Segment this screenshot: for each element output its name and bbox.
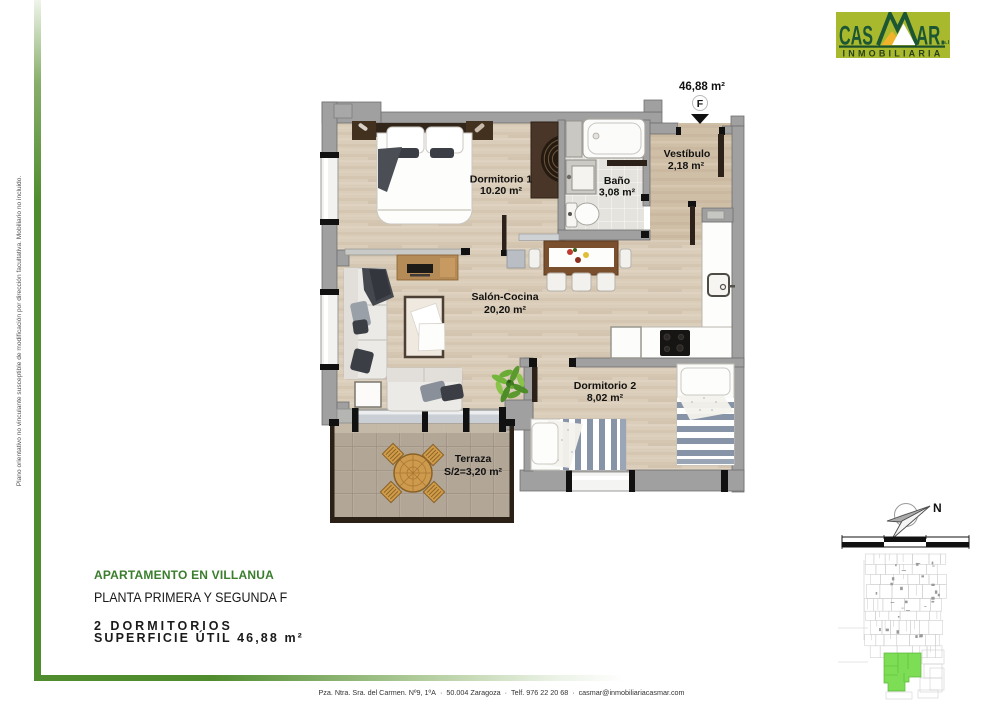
svg-text:20,20 m²: 20,20 m² xyxy=(484,304,527,316)
svg-text:N: N xyxy=(933,501,942,515)
svg-text:46,88 m²: 46,88 m² xyxy=(679,81,725,93)
svg-text:Vestíbulo: Vestíbulo xyxy=(664,148,711,160)
svg-text:S/2=3,20 m²: S/2=3,20 m² xyxy=(444,466,503,478)
svg-text:10.20 m²: 10.20 m² xyxy=(480,185,523,197)
svg-text:Terraza: Terraza xyxy=(455,453,492,465)
svg-text:Salón-Cocina: Salón-Cocina xyxy=(471,291,538,303)
svg-text:F: F xyxy=(697,98,704,110)
svg-text:2,18 m²: 2,18 m² xyxy=(668,160,705,172)
svg-text:Baño: Baño xyxy=(604,175,630,187)
svg-text:Dormitorio 2: Dormitorio 2 xyxy=(574,380,637,392)
svg-text:8,02 m²: 8,02 m² xyxy=(587,392,624,404)
svg-text:Dormitorio 1: Dormitorio 1 xyxy=(470,174,533,186)
svg-text:3,08 m²: 3,08 m² xyxy=(599,187,636,199)
